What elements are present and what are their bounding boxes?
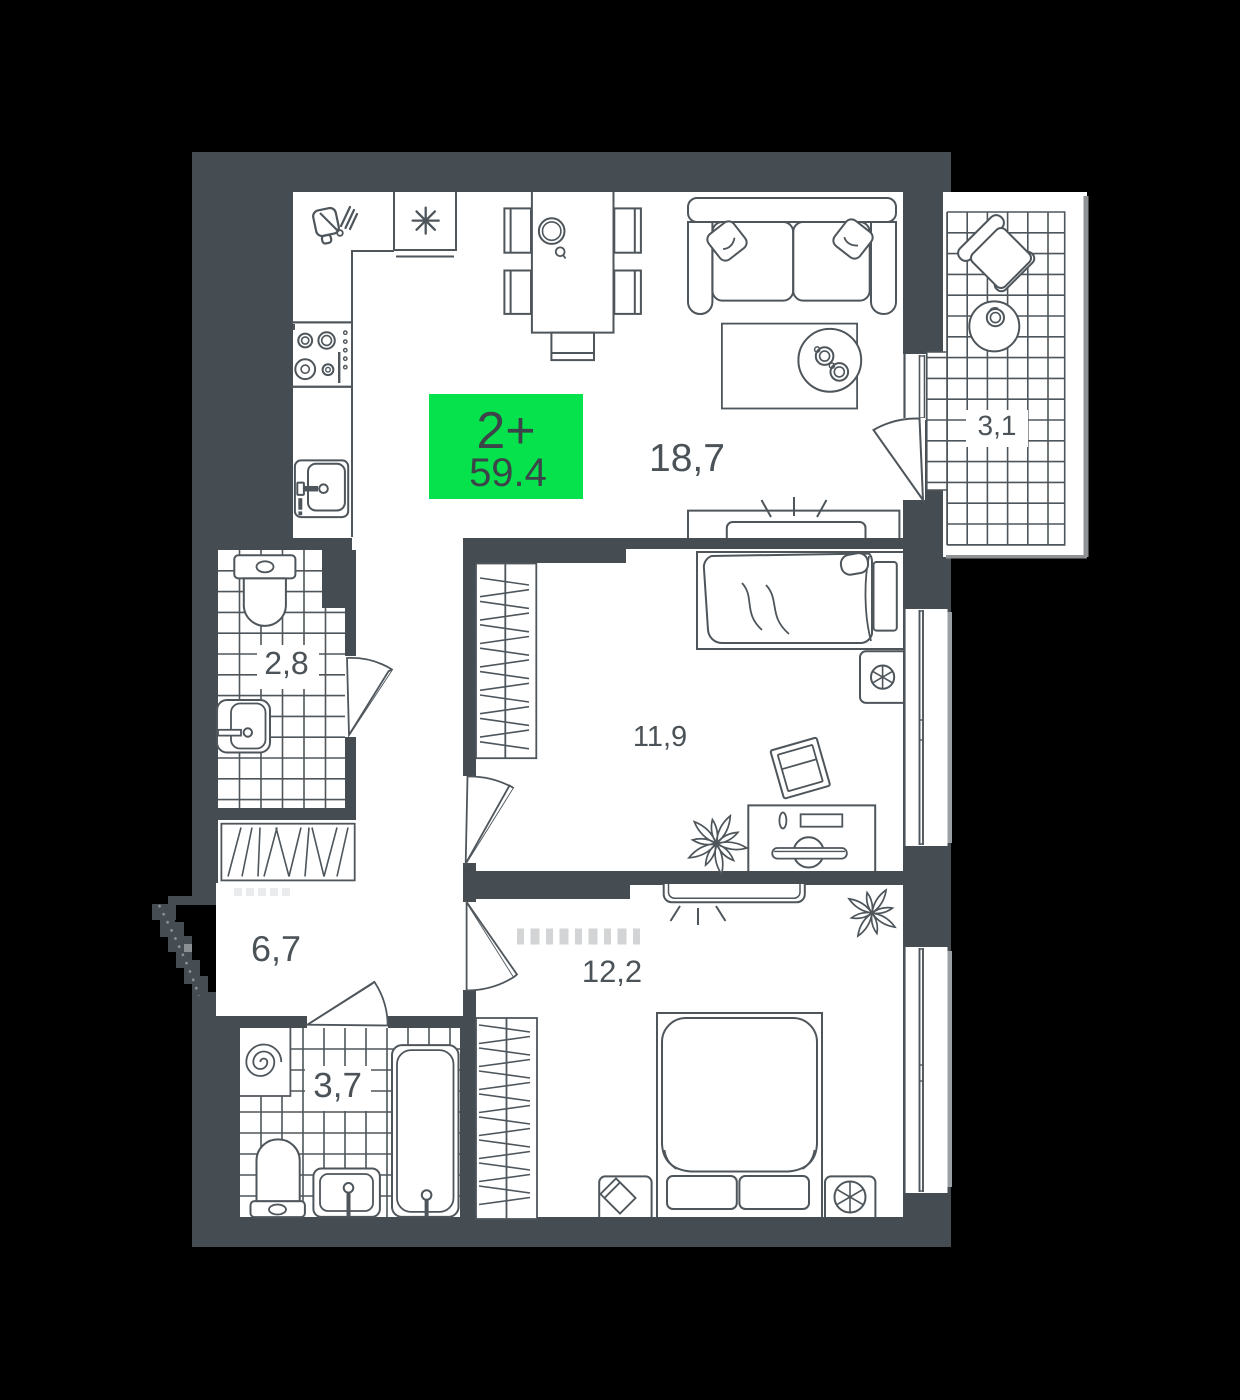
svg-text:3,1: 3,1	[978, 410, 1017, 441]
svg-text:18,7: 18,7	[649, 437, 725, 480]
svg-text:11,9: 11,9	[633, 721, 687, 753]
svg-text:2,8: 2,8	[264, 645, 309, 681]
svg-text:3,7: 3,7	[313, 1066, 362, 1105]
svg-text:6,7: 6,7	[251, 928, 301, 969]
svg-text:12,2: 12,2	[582, 954, 642, 989]
svg-text:59.4: 59.4	[469, 451, 547, 495]
